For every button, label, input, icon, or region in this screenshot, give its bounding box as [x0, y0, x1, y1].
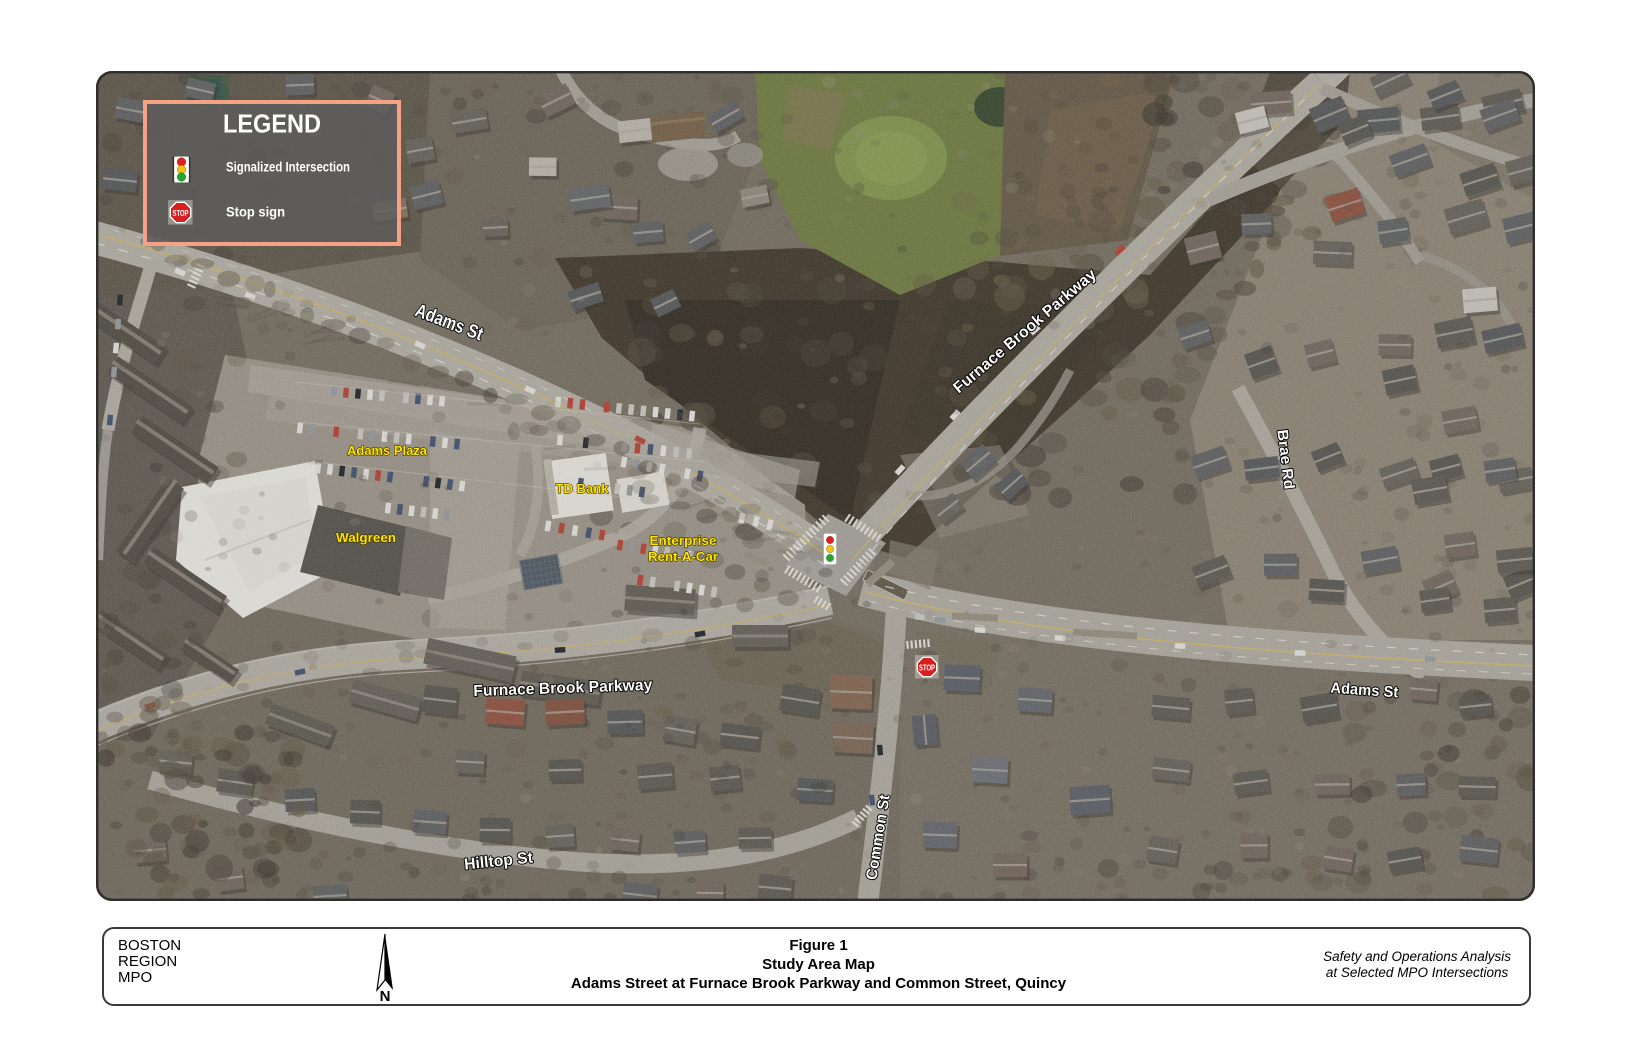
- svg-text:Enterprise: Enterprise: [650, 533, 717, 548]
- svg-text:STOP: STOP: [173, 208, 189, 218]
- svg-text:Signalized Intersection: Signalized Intersection: [226, 160, 350, 175]
- svg-text:Stop sign: Stop sign: [226, 204, 285, 220]
- svg-text:TD Bank: TD Bank: [556, 481, 610, 496]
- svg-text:Adams Plaza: Adams Plaza: [347, 443, 428, 458]
- svg-text:Rent-A-Car: Rent-A-Car: [648, 549, 718, 564]
- svg-text:LEGEND: LEGEND: [223, 109, 321, 139]
- svg-text:STOP: STOP: [919, 663, 935, 672]
- svg-text:Walgreen: Walgreen: [336, 530, 396, 545]
